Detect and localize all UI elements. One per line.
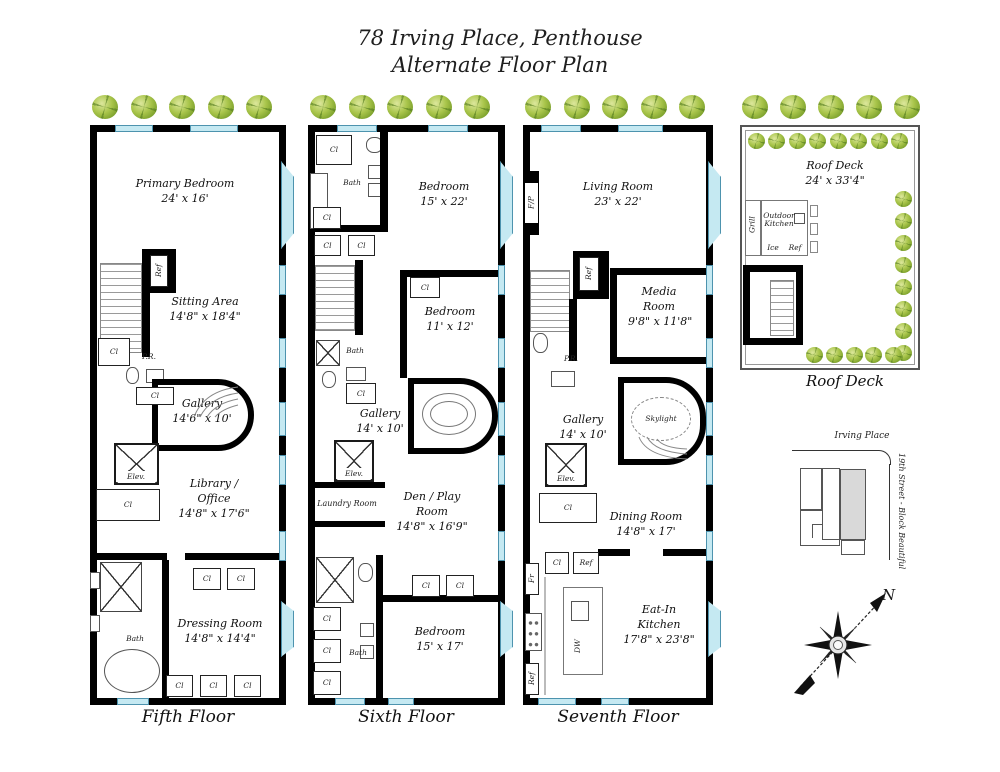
closet-label: Cl (446, 575, 474, 597)
closet-label: Cl (316, 135, 352, 165)
room-dims: 14'8" x 16'9" (396, 520, 468, 535)
toilet-icon (126, 367, 139, 384)
tree-row-sixth (310, 95, 490, 119)
room-living: Living Room 23' x 22' (548, 180, 688, 210)
window (541, 125, 581, 132)
tree-row-roof (742, 95, 920, 119)
window (618, 125, 663, 132)
room-name: Gallery (545, 413, 621, 428)
map-subject-building (840, 469, 866, 540)
bay-window (281, 601, 294, 657)
room-dims: 23' x 22' (548, 195, 688, 210)
bay-window (281, 161, 294, 249)
tree-icon (856, 95, 882, 119)
room-dressing: Dressing Room 14'8" x 14'4" (170, 617, 270, 647)
window (706, 402, 713, 436)
closet-label: Cl (314, 235, 341, 256)
room-dims: 14' x 10' (545, 428, 621, 443)
window (335, 698, 365, 705)
compass-north-label: N (882, 586, 895, 604)
tree-icon (564, 95, 590, 119)
sheet-title-line2: Alternate Floor Plan (0, 53, 1000, 77)
tree-icon (830, 133, 847, 149)
tree-icon (387, 95, 413, 119)
room-name: Dressing Room (170, 617, 270, 632)
caption-sixth: Sixth Floor (326, 707, 486, 727)
staircase (530, 270, 570, 332)
room-name: Primary Bedroom (115, 177, 255, 192)
closet-label: Cl (348, 235, 375, 256)
caption-fifth: Fifth Floor (108, 707, 268, 727)
room-name: Eat-In Kitchen (629, 603, 689, 633)
closet-label: Cl (166, 675, 193, 697)
wall (355, 260, 363, 335)
tree-icon (768, 133, 785, 149)
caption-roof-deck: Roof Deck (780, 372, 910, 390)
tree-icon (679, 95, 705, 119)
tree-icon (748, 133, 765, 149)
wall (610, 268, 706, 275)
tree-icon (891, 133, 908, 149)
window (190, 125, 238, 132)
floor-plan-sheet: 78 Irving Place, Penthouse Alternate Flo… (0, 0, 1000, 772)
room-name: Roof Deck (782, 159, 888, 174)
room-name: Dining Room (601, 510, 691, 525)
wall (598, 549, 630, 556)
tree-icon (806, 347, 823, 363)
bath-label: Bath (332, 177, 372, 189)
tree-row-seventh (525, 95, 705, 119)
tree-icon (426, 95, 452, 119)
map-building (841, 540, 865, 555)
sink-icon (551, 371, 575, 387)
room-name: Media Room (628, 285, 690, 315)
room-bedroom-middle: Bedroom 11' x 12' (408, 305, 492, 335)
tree-icon (310, 95, 336, 119)
window (498, 531, 505, 561)
wall (610, 268, 617, 364)
tree-icon (525, 95, 551, 119)
room-dims: 15' x 22' (390, 195, 498, 210)
skylight-label: Skylight (645, 415, 676, 423)
location-map: Irving Place 19th Street - Block Beautif… (792, 428, 957, 568)
stool-icon (810, 205, 818, 217)
range-icon (525, 613, 542, 651)
sheet-title-line1: 78 Irving Place, Penthouse (0, 26, 1000, 50)
powder-room-label: P.R. (132, 351, 166, 363)
room-library-office: Library / Office 14'8" x 17'6" (174, 477, 254, 522)
tree-icon (895, 257, 912, 273)
closet-label: Cl (96, 489, 160, 521)
tree-icon (780, 95, 806, 119)
deck-tree-row-top (748, 133, 908, 149)
stool-icon (810, 223, 818, 235)
tree-icon (846, 347, 863, 363)
wall (315, 521, 385, 527)
room-dims: 14'8" x 17'6" (174, 507, 254, 522)
room-bedroom-bottom: Bedroom 15' x 17' (390, 625, 490, 655)
street-line (889, 464, 890, 560)
fridge-label: Ref (573, 552, 599, 574)
room-media: Media Room 9'8" x 11'8" (628, 285, 690, 330)
room-dims: 14'8" x 17' (601, 525, 691, 540)
window (498, 402, 505, 436)
wall (185, 553, 279, 560)
room-den: Den / Play Room 14'8" x 16'9" (396, 490, 468, 535)
staircase (315, 265, 355, 331)
tree-icon (809, 133, 826, 149)
room-name: Bedroom (390, 180, 498, 195)
fridge-label: Ref (784, 242, 806, 253)
bathtub-icon (104, 649, 160, 693)
wall (97, 553, 167, 560)
window (498, 338, 505, 368)
closet-label: Cl (313, 607, 341, 631)
closet-label: Cl (200, 675, 227, 697)
wall (383, 595, 498, 602)
tree-icon (894, 95, 920, 119)
wall (569, 299, 577, 361)
sink-icon (346, 367, 366, 381)
closet-label: Cl (193, 568, 221, 590)
closet-label: Cl (346, 383, 376, 404)
floor-plan-fifth: Primary Bedroom 24' x 16' Sitting Area 1… (90, 125, 286, 705)
room-gallery: Gallery 14' x 10' (340, 407, 420, 437)
room-primary-bedroom: Primary Bedroom 24' x 16' (115, 177, 255, 207)
fridge-label: Ref (525, 663, 539, 695)
window (337, 125, 377, 132)
freezer-label: Fr (525, 563, 539, 595)
curved-stair-icon (190, 383, 242, 419)
bay-window (708, 601, 721, 657)
outdoor-kitchen-label: Outdoor Kitchen (763, 207, 795, 233)
island-sink-icon (571, 601, 589, 621)
wall (400, 270, 498, 277)
closet-label: Cl (313, 207, 341, 229)
room-kitchen: Eat-In Kitchen 17'8" x 23'8" (615, 603, 703, 648)
room-name: Den / Play Room (396, 490, 468, 520)
room-dims: 14'8" x 18'4" (135, 310, 275, 325)
street-line (792, 450, 878, 451)
bay-window (500, 161, 513, 249)
room-roof-deck: Roof Deck 24' x 33'4" (782, 159, 888, 189)
wall (610, 357, 713, 364)
room-bedroom-top: Bedroom 15' x 22' (390, 180, 498, 210)
room-dims: 11' x 12' (408, 320, 492, 335)
closet-label: Cl (234, 675, 261, 697)
tree-icon (349, 95, 375, 119)
street-label-19th-street: 19th Street - Block Beautiful (894, 452, 908, 570)
closet-label: Cl (227, 568, 255, 590)
room-name: Gallery (340, 407, 420, 422)
room-name: Bedroom (390, 625, 490, 640)
caption-seventh: Seventh Floor (533, 707, 703, 727)
tree-icon (208, 95, 234, 119)
fridge-label: Ref (150, 255, 168, 287)
window (706, 338, 713, 368)
tree-icon (895, 301, 912, 317)
laundry-room-label: Laundry Room (316, 488, 378, 520)
tree-icon (850, 133, 867, 149)
bath-label: Bath (342, 647, 374, 659)
room-dims: 14' x 10' (340, 422, 420, 437)
tree-icon (641, 95, 667, 119)
room-dims: 9'8" x 11'8" (628, 315, 690, 330)
window (388, 698, 414, 705)
wall (380, 132, 388, 232)
toilet-icon (358, 563, 373, 582)
street-label-irving-place: Irving Place (802, 430, 922, 444)
bath-label: Bath (338, 345, 372, 357)
room-name: Library / Office (174, 477, 254, 507)
map-building (800, 468, 822, 510)
map-building (822, 468, 840, 540)
powder-room-label: P.R. (553, 353, 589, 365)
tree-icon (131, 95, 157, 119)
tree-icon (602, 95, 628, 119)
room-sitting-area: Sitting Area 14'8" x 18'4" (135, 295, 275, 325)
sink-icon (90, 615, 100, 632)
window (428, 125, 468, 132)
toilet-icon (533, 333, 548, 353)
room-dims: 15' x 17' (390, 640, 490, 655)
closet-label: Cl (313, 671, 341, 695)
tree-icon (895, 323, 912, 339)
bay-window (708, 161, 721, 249)
sink-icon (360, 623, 374, 637)
elevator-label: Elev. (336, 468, 372, 479)
window (706, 455, 713, 485)
room-dims: 24' x 16' (115, 192, 255, 207)
window (279, 402, 286, 436)
curved-stair-icon (635, 435, 691, 461)
deck-tree-row-bottom (806, 347, 902, 363)
tree-icon (246, 95, 272, 119)
stair-bulkhead (743, 265, 803, 345)
tree-icon (865, 347, 882, 363)
window (117, 698, 149, 705)
deck-tree-col-right (895, 191, 912, 361)
room-name: Bedroom (408, 305, 492, 320)
window (538, 698, 576, 705)
oval-stair-icon (430, 401, 468, 427)
ice-label: Ice (762, 242, 784, 253)
tree-icon (742, 95, 768, 119)
sink-icon (90, 572, 100, 589)
window (706, 265, 713, 295)
street-corner (876, 450, 891, 465)
closet-label: Cl (313, 639, 341, 663)
grill-label: Grill (746, 205, 759, 245)
room-dining: Dining Room 14'8" x 17' (601, 510, 691, 540)
room-dims: 17'8" x 23'8" (615, 633, 703, 648)
closet-label: Cl (98, 338, 130, 366)
floor-plan-sixth: Cl Bath Bedroom 15' x 22' Cl Cl Cl Bath … (308, 125, 505, 705)
closet-label: Cl (539, 493, 597, 523)
tree-icon (92, 95, 118, 119)
elevator-label: Elev. (547, 473, 585, 484)
stool-icon (810, 241, 818, 253)
bay-window (500, 601, 513, 657)
shower (316, 557, 354, 603)
floor-plan-seventh: F/P Living Room 23' x 22' Ref Media Room… (523, 125, 713, 705)
closet-label: Cl (545, 552, 569, 574)
tree-icon (885, 347, 902, 363)
toilet-icon (322, 371, 336, 388)
sink-icon (794, 213, 805, 224)
closet-label: Cl (410, 277, 440, 298)
roof-deck-plan: Roof Deck 24' x 33'4" Grill Outdoor Kitc… (740, 125, 920, 370)
tree-row-fifth (92, 95, 272, 119)
tree-icon (826, 347, 843, 363)
tree-icon (818, 95, 844, 119)
tree-icon (871, 133, 888, 149)
window (601, 698, 629, 705)
kitchen-counter (544, 577, 546, 695)
wall (376, 555, 383, 698)
elevator-label: Elev. (116, 471, 156, 482)
shower (316, 340, 340, 366)
closet-label: Cl (412, 575, 440, 597)
window (498, 455, 505, 485)
room-dims: 24' x 33'4" (782, 174, 888, 189)
room-name: Sitting Area (135, 295, 275, 310)
window (115, 125, 153, 132)
room-gallery: Gallery 14' x 10' (545, 413, 621, 443)
window (279, 531, 286, 561)
tree-icon (895, 213, 912, 229)
window (498, 265, 505, 295)
window (706, 531, 713, 561)
tree-icon (169, 95, 195, 119)
room-dims: 14'8" x 14'4" (170, 632, 270, 647)
tree-icon (895, 191, 912, 207)
window (279, 265, 286, 295)
window (279, 455, 286, 485)
tree-icon (464, 95, 490, 119)
shower (100, 562, 142, 612)
bath-label: Bath (118, 633, 152, 645)
tree-icon (895, 279, 912, 295)
tree-icon (789, 133, 806, 149)
wall (400, 270, 407, 378)
fireplace-label: F/P (525, 183, 538, 223)
tree-icon (895, 235, 912, 251)
room-name: Living Room (548, 180, 688, 195)
fridge-label: Ref (579, 257, 599, 291)
window (279, 338, 286, 368)
dishwasher-label: DW (571, 633, 585, 659)
